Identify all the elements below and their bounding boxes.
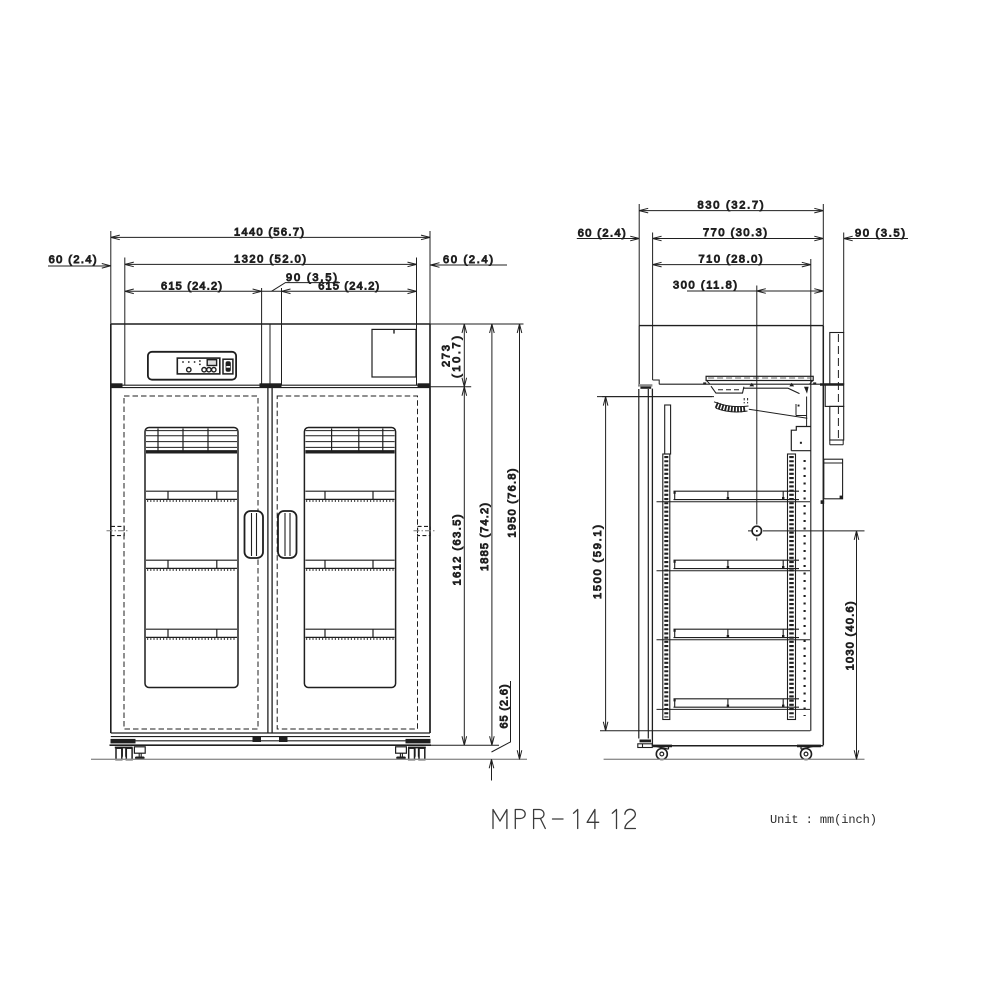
svg-text:90 (3.5): 90 (3.5)	[286, 272, 337, 284]
svg-text:1950 (76.8): 1950 (76.8)	[507, 469, 519, 538]
svg-text:1500 (59.1): 1500 (59.1)	[592, 525, 604, 599]
svg-text:60 (2.4): 60 (2.4)	[443, 254, 493, 266]
svg-text:60 (2.4): 60 (2.4)	[578, 228, 626, 240]
svg-text:615 (24.2): 615 (24.2)	[161, 281, 222, 293]
svg-text:(10.7): (10.7)	[451, 336, 463, 378]
svg-text:770 (30.3): 770 (30.3)	[703, 227, 767, 239]
svg-text:830 (32.7): 830 (32.7)	[698, 199, 764, 211]
svg-text:1030 (40.6): 1030 (40.6)	[845, 601, 857, 670]
svg-text:Unit : mm(inch): Unit : mm(inch)	[770, 813, 877, 827]
svg-text:60 (2.4): 60 (2.4)	[49, 254, 97, 266]
svg-text:1440 (56.7): 1440 (56.7)	[234, 227, 304, 239]
svg-text:1612 (63.5): 1612 (63.5)	[451, 515, 463, 586]
svg-text:90 (3.5): 90 (3.5)	[855, 227, 905, 239]
svg-text:300 (11.8): 300 (11.8)	[673, 280, 737, 292]
svg-text:1885 (74.2): 1885 (74.2)	[479, 503, 491, 571]
svg-text:65 (2.6): 65 (2.6)	[499, 685, 511, 729]
svg-text:1320 (52.0): 1320 (52.0)	[234, 254, 306, 266]
svg-text:710 (28.0): 710 (28.0)	[699, 253, 763, 265]
